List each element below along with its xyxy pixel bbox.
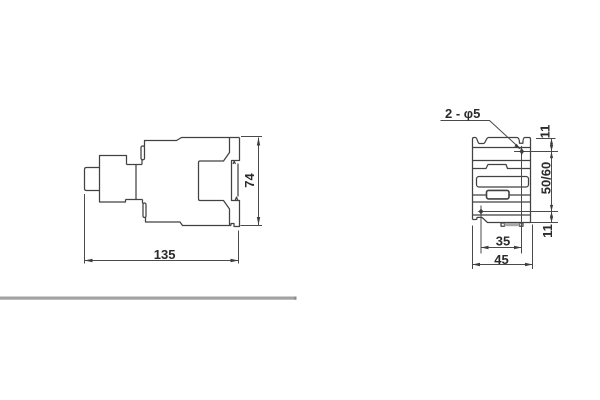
svg-text:135: 135 bbox=[154, 247, 176, 262]
svg-text:74: 74 bbox=[242, 173, 257, 188]
svg-text:45: 45 bbox=[494, 252, 508, 267]
svg-text:35: 35 bbox=[496, 234, 510, 249]
svg-text:11: 11 bbox=[538, 125, 553, 139]
svg-text:2 - φ5: 2 - φ5 bbox=[445, 106, 480, 121]
svg-text:50/60: 50/60 bbox=[539, 162, 554, 195]
svg-text:11: 11 bbox=[540, 224, 555, 238]
